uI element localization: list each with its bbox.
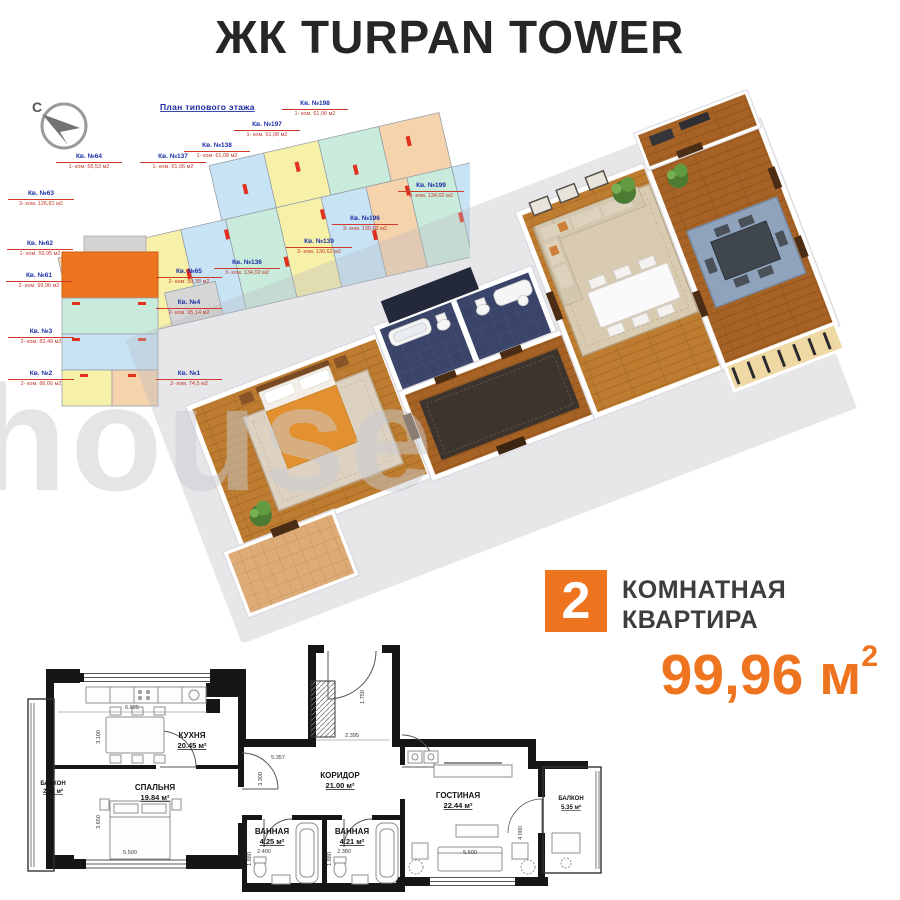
svg-text:5.500: 5.500 — [123, 850, 137, 856]
svg-text:4.000: 4.000 — [518, 826, 524, 840]
apartment-label-1: Кв. №12- ком. 74,5 м2 — [156, 370, 222, 389]
room-label-kitchen: КУХНЯ — [179, 731, 206, 740]
svg-text:1.750: 1.750 — [360, 690, 366, 704]
apartment-label-61: Кв. №612- ком. 99,96 м2 — [6, 272, 72, 291]
poster-page: ЖК TURPAN TOWER С План типового этажа — [0, 0, 900, 900]
apartment-type-line2: КВАРТИРА — [622, 606, 786, 636]
apartment-label-197: Кв. №1971- ком. 61,08 м2 — [234, 121, 300, 140]
room-area-corridor: 21.00 м² — [326, 781, 355, 790]
svg-text:2.380: 2.380 — [337, 849, 351, 855]
room-label-bath2: ВАННАЯ — [335, 827, 369, 836]
room-area-kitchen: 20.45 м² — [178, 741, 207, 750]
room-area-balcony-right: 5.35 м² — [561, 804, 581, 811]
room-area-bedroom: 19.84 м² — [141, 793, 170, 802]
room-label-bath1: ВАННАЯ — [255, 827, 289, 836]
page-title: ЖК TURPAN TOWER — [0, 10, 900, 64]
svg-text:5.500: 5.500 — [463, 850, 477, 856]
apartment-2d-plan: БАЛКОН 2.42 м² КУХНЯ 20.45 м² СПАЛЬНЯ 19… — [10, 637, 610, 895]
room-label-living: ГОСТИНАЯ — [436, 791, 480, 800]
apartment-3d-render — [0, 82, 900, 642]
room-area-balcony-left: 2.42 м² — [43, 788, 63, 795]
apartment-label-136: Кв. №1363- ком. 134,02 м2 — [214, 259, 280, 278]
svg-text:1.880: 1.880 — [247, 852, 253, 866]
apartment-label-3: Кв. №32- ком. 83,49 м2 — [8, 328, 74, 347]
room-label-corridor: КОРИДОР — [320, 771, 360, 780]
svg-text:2.395: 2.395 — [345, 733, 359, 739]
room-label-balcony-right: БАЛКОН — [558, 796, 583, 802]
rooms-count-badge: 2 — [545, 570, 607, 632]
apartment-label-63: Кв. №633- ком. 126,81 м2 — [8, 190, 74, 209]
apartment-label-138: Кв. №1381- ком. 61,08 м2 — [184, 142, 250, 161]
svg-text:2.400: 2.400 — [257, 849, 271, 855]
room-label-bedroom: СПАЛЬНЯ — [135, 783, 176, 792]
svg-text:6.825: 6.825 — [125, 705, 139, 711]
room-label-balcony-left: БАЛКОН — [40, 781, 65, 787]
apartment-label-196: Кв. №1963- ком. 130,62 м2 — [332, 215, 398, 234]
apartment-label-2: Кв. №22- ком. 86,66 м2 — [8, 370, 74, 389]
room-area-bath1: 4.25 м² — [260, 837, 285, 846]
apartment-label-65: Кв. №652- ком. 99,38 м2 — [156, 268, 222, 287]
svg-text:3.650: 3.650 — [96, 815, 102, 829]
svg-text:3.100: 3.100 — [96, 730, 102, 744]
apartment-label-62: Кв. №621- ком. 59,95 м2 — [7, 240, 73, 259]
svg-text:1.880: 1.880 — [327, 852, 333, 866]
svg-text:3.300: 3.300 — [258, 772, 264, 786]
apartment-label-139: Кв. №1393- ком. 130,62 м2 — [286, 238, 352, 257]
room-area-living: 22.44 м² — [444, 801, 473, 810]
room-area-bath2: 4.21 м² — [340, 837, 365, 846]
apartment-label-4: Кв. №42- ком. 95,14 м2 — [156, 299, 222, 318]
apartment-type-line1: КОМНАТНАЯ — [622, 576, 786, 606]
area-superscript: 2 — [861, 640, 878, 673]
wardrobe — [311, 681, 335, 737]
apartment-type-label: КОМНАТНАЯ КВАРТИРА — [622, 576, 786, 635]
apartment-label-64: Кв. №641- ком. 56,53 м2 — [56, 153, 122, 172]
apartment-label-198: Кв. №1981- ком. 61,06 м2 — [282, 100, 348, 119]
svg-text:5.357: 5.357 — [271, 755, 285, 761]
apartment-label-199: Кв. №1993- ком. 134,02 м2 — [398, 182, 464, 201]
total-area-value: 99,96 м2 — [560, 640, 878, 708]
